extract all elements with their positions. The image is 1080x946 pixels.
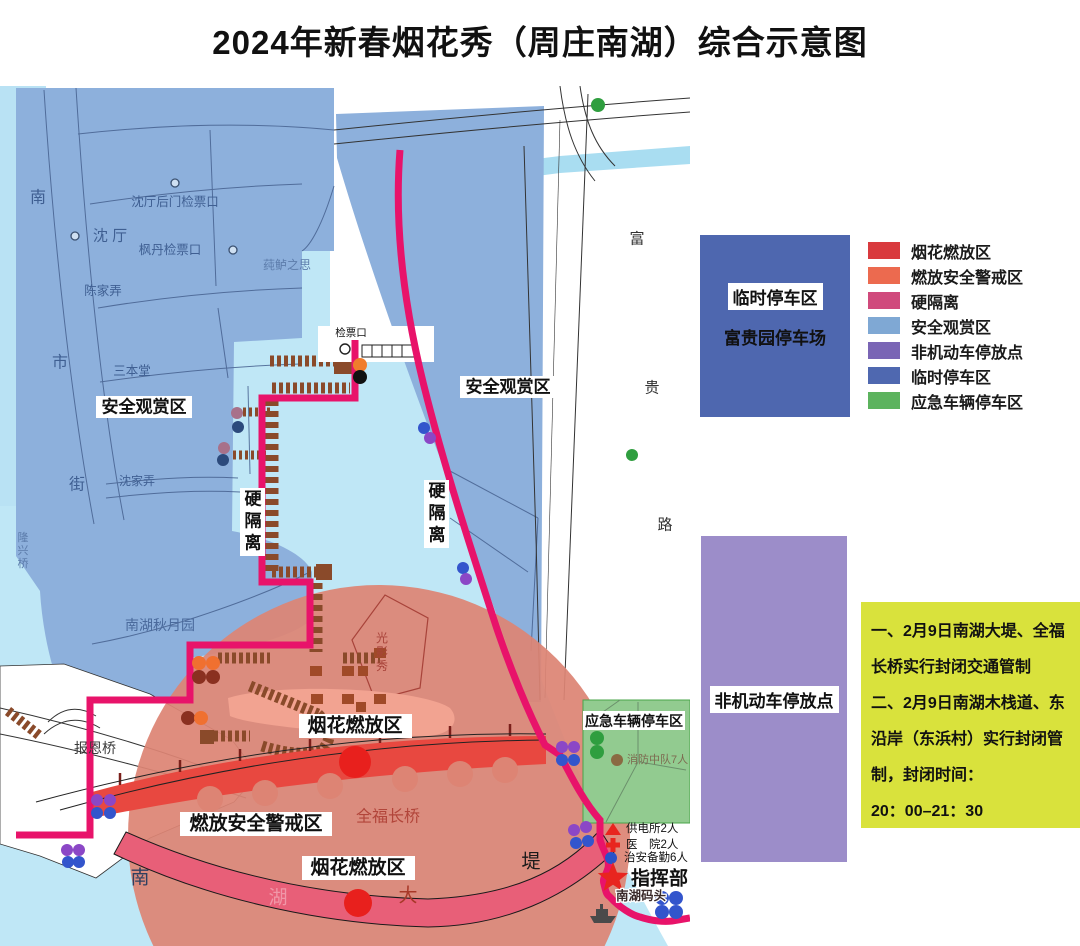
place-label: 检票口 bbox=[335, 326, 367, 339]
legend-swatch bbox=[868, 292, 900, 309]
legend-row: 临时停车区 bbox=[868, 367, 1023, 384]
traffic-notice-box: 一、2月9日南湖大堤、全福长桥实行封闭交通管制 二、2月9日南湖木栈道、东沿岸（… bbox=[861, 602, 1080, 828]
legend-row: 燃放安全警戒区 bbox=[868, 267, 1023, 284]
point-label-yiyuan: 医 院2人 bbox=[626, 837, 679, 851]
dot bbox=[669, 891, 683, 905]
street-label: 沈家弄 bbox=[119, 473, 155, 488]
point-label-zhian: 治安备勤6人 bbox=[624, 850, 688, 864]
place-label: 全福长桥 bbox=[356, 808, 420, 826]
dot bbox=[580, 821, 592, 833]
dot bbox=[568, 824, 580, 836]
gate-marker bbox=[71, 232, 79, 240]
street-label: 市 bbox=[52, 354, 68, 372]
non-motor-box: 非机动车停放点 bbox=[701, 536, 847, 862]
gate-marker bbox=[171, 179, 179, 187]
dot bbox=[418, 422, 430, 434]
point-label-xiaofang: 消防中队7人 bbox=[627, 752, 688, 766]
map-canvas: 南 湖 大 堤 bbox=[0, 86, 690, 946]
dot bbox=[570, 837, 582, 849]
dike-char: 堤 bbox=[521, 851, 540, 873]
dike-char: 湖 bbox=[268, 887, 287, 909]
legend-swatch bbox=[868, 392, 900, 409]
dot bbox=[194, 711, 208, 725]
dot bbox=[181, 711, 195, 725]
dot bbox=[582, 835, 594, 847]
legend-label: 烟花燃放区 bbox=[911, 239, 991, 263]
place-label: 秀 bbox=[376, 659, 388, 673]
dike-char: 大 bbox=[398, 885, 417, 907]
poster: 2024年新春烟花秀（周庄南湖）综合示意图 bbox=[0, 0, 1080, 946]
dot bbox=[231, 407, 243, 419]
dot bbox=[104, 807, 116, 819]
ticket-gate-marker bbox=[340, 344, 350, 354]
legend-swatch bbox=[868, 242, 900, 259]
zone-label-fireworks: 烟花燃放区 bbox=[307, 714, 402, 737]
zone-label-safe-view: 安全观赏区 bbox=[466, 377, 551, 397]
dot bbox=[568, 741, 580, 753]
zone-label-hard-isolation: 离 bbox=[245, 533, 262, 553]
dot bbox=[424, 432, 436, 444]
dot bbox=[91, 807, 103, 819]
dot bbox=[217, 454, 229, 466]
zone-label-fireworks: 烟花燃放区 bbox=[310, 856, 405, 879]
temp-parking-title: 临时停车区 bbox=[728, 283, 823, 310]
dot bbox=[353, 370, 367, 384]
temp-parking-box: 临时停车区 富贵园停车场 bbox=[700, 235, 850, 417]
place-label: 桥 bbox=[18, 557, 29, 570]
zone-label-emergency: 应急车辆停车区 bbox=[585, 713, 683, 729]
place-label: 兴 bbox=[18, 544, 29, 557]
dot bbox=[457, 562, 469, 574]
dot bbox=[590, 731, 604, 745]
legend-row: 安全观赏区 bbox=[868, 317, 1023, 334]
dot bbox=[591, 98, 605, 112]
dot bbox=[611, 754, 623, 766]
street-label: 富 bbox=[629, 230, 644, 248]
place-label: 枫丹检票口 bbox=[139, 242, 202, 257]
dot bbox=[192, 670, 206, 684]
temp-parking-subtitle: 富贵园停车场 bbox=[700, 324, 850, 349]
zone-label-hard-isolation: 隔 bbox=[429, 504, 446, 523]
street-label: 贵 bbox=[644, 380, 659, 397]
fireworks-launch-point bbox=[339, 746, 371, 778]
dot bbox=[62, 856, 74, 868]
place-label: 光 bbox=[376, 631, 388, 645]
legend-row: 非机动车停放点 bbox=[868, 342, 1023, 359]
dot bbox=[218, 442, 230, 454]
dot bbox=[460, 573, 472, 585]
place-label: 沈 厅 bbox=[93, 228, 127, 245]
dot bbox=[556, 741, 568, 753]
legend-label: 燃放安全警戒区 bbox=[911, 264, 1023, 288]
police-dot bbox=[605, 852, 617, 864]
fireworks-launch-point bbox=[344, 889, 372, 917]
point-label-zhihuibu: 指挥部 bbox=[631, 867, 688, 890]
dot bbox=[192, 656, 206, 670]
street-label: 三本堂 bbox=[113, 364, 151, 378]
legend-swatch bbox=[868, 317, 900, 334]
dot bbox=[232, 421, 244, 433]
dot bbox=[655, 905, 669, 919]
dot bbox=[206, 670, 220, 684]
ticket-footbridge bbox=[362, 345, 414, 357]
page-title: 2024年新春烟花秀（周庄南湖）综合示意图 bbox=[0, 16, 1080, 64]
legend-label: 非机动车停放点 bbox=[911, 339, 1023, 363]
place-label: 影 bbox=[376, 645, 388, 659]
dot bbox=[626, 449, 638, 461]
gate-marker bbox=[229, 246, 237, 254]
dot bbox=[91, 794, 103, 806]
zone-label-hard-isolation: 隔 bbox=[245, 512, 262, 531]
legend-swatch bbox=[868, 367, 900, 384]
street-label: 陈家弄 bbox=[84, 283, 122, 298]
dot bbox=[73, 856, 85, 868]
zone-label-warning: 燃放安全警戒区 bbox=[189, 812, 322, 835]
legend-swatch bbox=[868, 267, 900, 284]
legend: 烟花燃放区 燃放安全警戒区 硬隔离 安全观赏区 非机动车停放点 临时停车区 应急… bbox=[868, 242, 1023, 417]
legend-row: 烟花燃放区 bbox=[868, 242, 1023, 259]
place-label: 报恩桥 bbox=[74, 740, 116, 756]
dike-char: 南 bbox=[130, 867, 149, 889]
dot bbox=[556, 754, 568, 766]
place-label: 南湖秋月园 bbox=[125, 617, 195, 633]
dot bbox=[669, 905, 683, 919]
legend-row: 硬隔离 bbox=[868, 292, 1023, 309]
legend-label: 硬隔离 bbox=[911, 289, 959, 313]
zone-label-hard-isolation: 离 bbox=[429, 525, 446, 545]
dot bbox=[206, 656, 220, 670]
legend-swatch bbox=[868, 342, 900, 359]
dot bbox=[568, 754, 580, 766]
non-motor-title: 非机动车停放点 bbox=[710, 686, 839, 713]
legend-label: 安全观赏区 bbox=[911, 314, 991, 338]
zone-label-hard-isolation: 硬 bbox=[429, 482, 447, 501]
dot bbox=[73, 844, 85, 856]
place-label: 莼鲈之思 bbox=[263, 258, 311, 272]
legend-label: 临时停车区 bbox=[911, 364, 991, 388]
dot bbox=[353, 358, 367, 372]
zone-label-hard-isolation: 硬 bbox=[245, 490, 263, 509]
legend-row: 应急车辆停车区 bbox=[868, 392, 1023, 409]
point-label-gongdian: 供电所2人 bbox=[626, 821, 679, 835]
place-label: 沈厅后门检票口 bbox=[131, 194, 219, 209]
zone-label-safe-view: 安全观赏区 bbox=[102, 397, 187, 417]
dot bbox=[104, 794, 116, 806]
street-label: 南 bbox=[30, 189, 46, 207]
place-label-matou: 南湖码头 bbox=[616, 888, 667, 903]
legend-label: 应急车辆停车区 bbox=[911, 389, 1023, 413]
dot bbox=[61, 844, 73, 856]
place-label: 隆 bbox=[18, 530, 29, 544]
dot bbox=[590, 745, 604, 759]
street-label: 路 bbox=[657, 517, 672, 534]
street-label: 街 bbox=[69, 476, 85, 494]
